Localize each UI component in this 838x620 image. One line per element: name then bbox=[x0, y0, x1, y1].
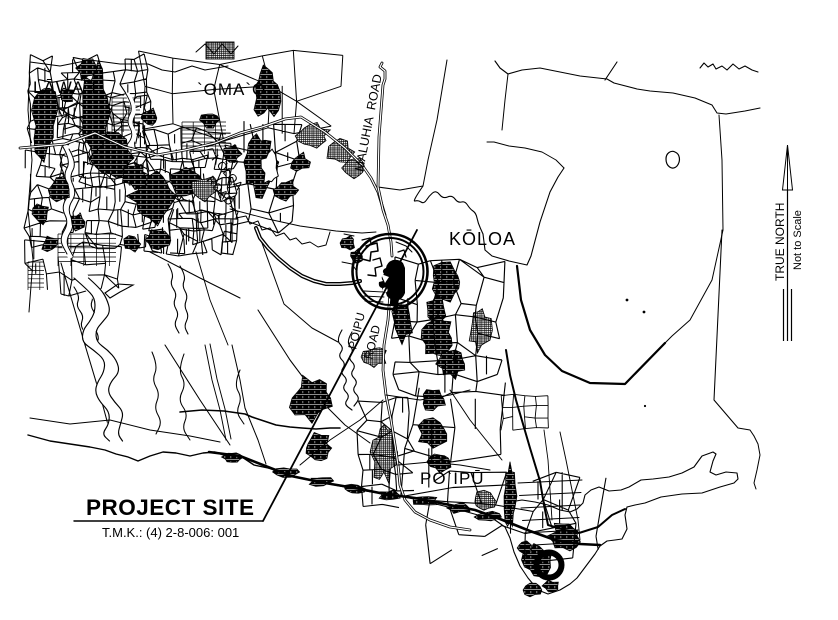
svg-text:TRUE NORTH: TRUE NORTH bbox=[773, 203, 787, 281]
svg-text:`OMA`O: `OMA`O bbox=[197, 80, 266, 99]
svg-text:T.M.K.: (4) 2-8-006: 001: T.M.K.: (4) 2-8-006: 001 bbox=[102, 525, 239, 540]
svg-text:PO`IPŪ: PO`IPŪ bbox=[420, 469, 485, 488]
svg-text:KŌLOA: KŌLOA bbox=[449, 229, 516, 249]
svg-text:Not to Scale: Not to Scale bbox=[792, 210, 804, 270]
svg-text:LĀWA`I: LĀWA`I bbox=[33, 78, 97, 97]
svg-text:PROJECT SITE: PROJECT SITE bbox=[86, 495, 255, 520]
